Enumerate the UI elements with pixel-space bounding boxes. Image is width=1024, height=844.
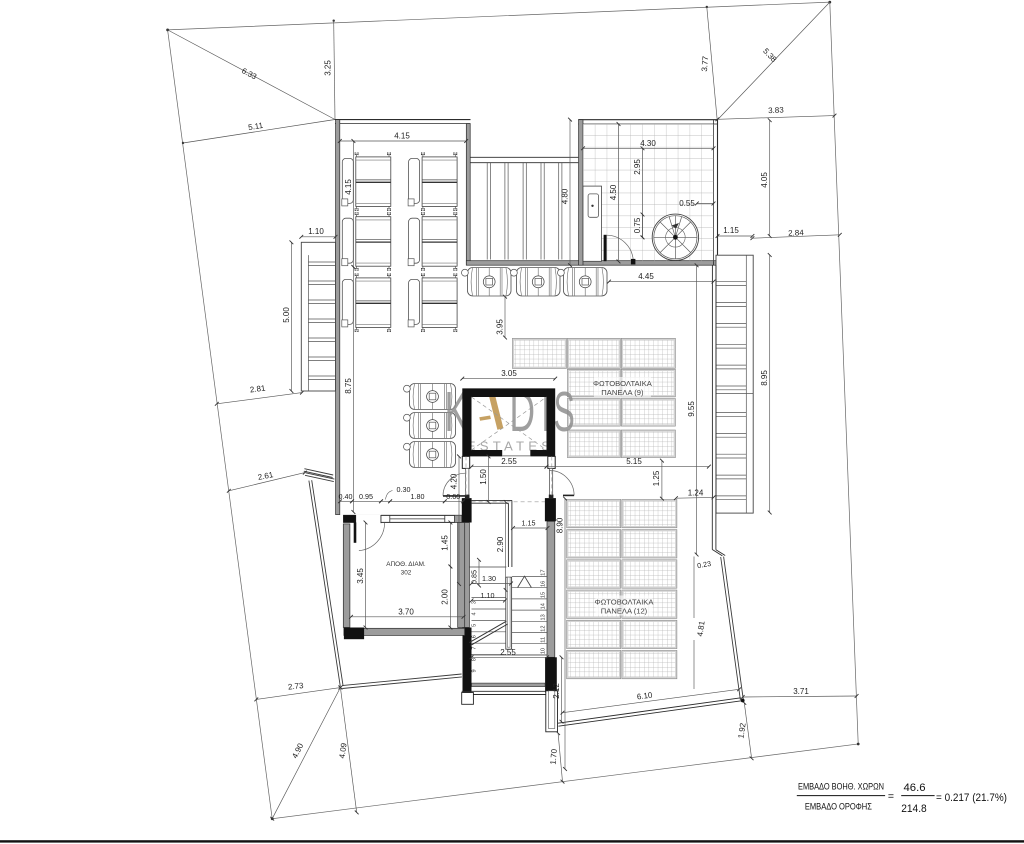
- svg-text:2.12: 2.12: [552, 683, 561, 699]
- svg-text:4.50: 4.50: [609, 184, 618, 200]
- svg-text:1.24: 1.24: [688, 488, 704, 497]
- svg-text:0.30: 0.30: [397, 485, 411, 494]
- svg-text:4.20: 4.20: [449, 473, 458, 489]
- svg-text:9: 9: [472, 669, 478, 672]
- svg-text:8.90: 8.90: [555, 517, 564, 533]
- svg-text:4: 4: [472, 612, 478, 615]
- svg-text:1.70: 1.70: [549, 748, 559, 765]
- svg-text:4.05: 4.05: [760, 172, 769, 188]
- svg-text:46.6: 46.6: [904, 782, 926, 794]
- svg-text:5.00: 5.00: [282, 307, 291, 323]
- svg-text:3.05: 3.05: [501, 369, 517, 378]
- svg-text:14: 14: [541, 603, 547, 609]
- svg-text:ΠΑΝΕΛΑ (12): ΠΑΝΕΛΑ (12): [601, 606, 648, 615]
- svg-text:1.10: 1.10: [308, 227, 324, 236]
- svg-text:1.80: 1.80: [411, 492, 425, 501]
- svg-text:8.95: 8.95: [760, 370, 769, 386]
- svg-text:3.25: 3.25: [324, 60, 333, 76]
- svg-text:3: 3: [472, 601, 478, 604]
- svg-text:3.70: 3.70: [398, 607, 414, 616]
- svg-text:1.25: 1.25: [652, 470, 661, 486]
- svg-text:4.80: 4.80: [560, 188, 569, 204]
- svg-text:3.71: 3.71: [793, 687, 809, 696]
- svg-text:3.45: 3.45: [356, 568, 365, 584]
- svg-text:7: 7: [472, 647, 478, 650]
- svg-text:1.45: 1.45: [441, 535, 450, 551]
- svg-text:0.85: 0.85: [469, 570, 478, 584]
- svg-text:4.15: 4.15: [394, 132, 410, 141]
- svg-text:16: 16: [541, 581, 547, 587]
- svg-text:ΦΩΤΟΒΟΛΤΑΙΚΑ: ΦΩΤΟΒΟΛΤΑΙΚΑ: [595, 598, 655, 607]
- svg-text:2.95: 2.95: [633, 159, 642, 175]
- svg-text:0.60: 0.60: [446, 492, 460, 501]
- svg-text:S: S: [554, 379, 575, 443]
- svg-text:0.40: 0.40: [339, 492, 353, 501]
- svg-text:12: 12: [541, 625, 547, 631]
- svg-text:8: 8: [472, 658, 478, 661]
- svg-text:= 0.217 (21.7%): = 0.217 (21.7%): [936, 792, 1007, 804]
- svg-text:0.75: 0.75: [633, 217, 642, 233]
- svg-text:9.55: 9.55: [687, 401, 696, 417]
- svg-text:1.15: 1.15: [723, 226, 739, 235]
- svg-text:2.55: 2.55: [500, 648, 516, 657]
- svg-text:13: 13: [541, 614, 547, 620]
- svg-text:302: 302: [401, 570, 412, 577]
- svg-text:2.00: 2.00: [441, 589, 450, 605]
- svg-text:8.75: 8.75: [344, 378, 353, 394]
- svg-text:ΑΠΟΘ. ΔΙΑΜ.: ΑΠΟΘ. ΔΙΑΜ.: [386, 561, 426, 568]
- svg-text:4.45: 4.45: [638, 272, 654, 281]
- svg-text:2.55: 2.55: [501, 457, 517, 466]
- svg-text:4.30: 4.30: [640, 139, 656, 148]
- svg-text:2.90: 2.90: [496, 536, 505, 552]
- svg-text:4.15: 4.15: [344, 179, 353, 195]
- svg-text:2.84: 2.84: [788, 228, 804, 238]
- svg-text:3.83: 3.83: [768, 106, 784, 116]
- svg-text:ΕΜΒΑΔΟ ΒΟΗΘ. ΧΩΡΩΝ: ΕΜΒΑΔΟ ΒΟΗΘ. ΧΩΡΩΝ: [798, 781, 884, 791]
- svg-text:11: 11: [541, 637, 547, 643]
- svg-text:ΕΜΒΑΔΟ ΟΡΟΦΗΣ: ΕΜΒΑΔΟ ΟΡΟΦΗΣ: [805, 802, 872, 812]
- svg-text:6: 6: [472, 635, 478, 638]
- svg-text:3.77: 3.77: [700, 55, 710, 72]
- svg-text:0.55: 0.55: [679, 199, 695, 208]
- svg-text:1.10: 1.10: [481, 591, 495, 600]
- svg-text:ΦΩΤΟΒΟΛΤΑΙΚΑ: ΦΩΤΟΒΟΛΤΑΙΚΑ: [593, 379, 653, 388]
- svg-text:0.95: 0.95: [359, 492, 373, 501]
- svg-text:2.73: 2.73: [288, 681, 305, 692]
- svg-text:ΠΑΝΕΛΑ (9): ΠΑΝΕΛΑ (9): [601, 388, 644, 397]
- svg-text:5: 5: [472, 624, 478, 627]
- svg-text:1.30: 1.30: [482, 574, 496, 583]
- svg-text:17: 17: [541, 569, 547, 575]
- svg-text:10: 10: [541, 648, 547, 654]
- svg-text:5.15: 5.15: [626, 457, 642, 466]
- svg-text:1.15: 1.15: [522, 519, 536, 528]
- svg-text:1.50: 1.50: [479, 469, 488, 485]
- svg-text:3.95: 3.95: [495, 319, 504, 335]
- svg-text:=: =: [888, 791, 894, 803]
- svg-text:214.8: 214.8: [901, 803, 927, 815]
- svg-text:15: 15: [541, 592, 547, 598]
